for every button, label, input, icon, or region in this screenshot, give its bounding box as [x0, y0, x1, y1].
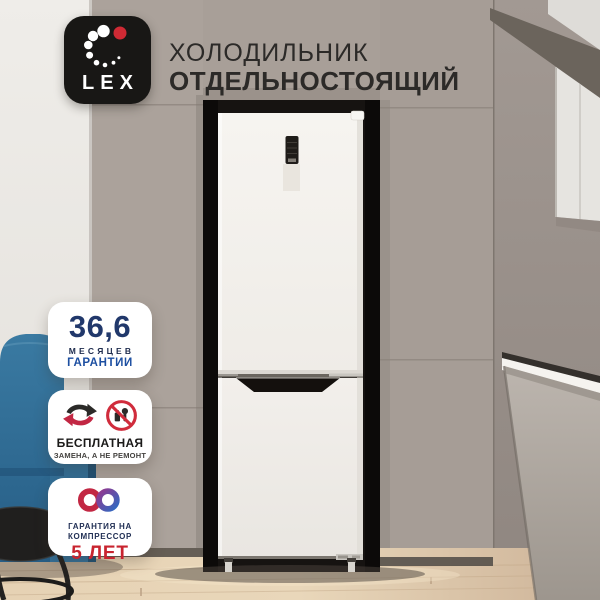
replacement-title: БЕСПЛАТНАЯ [48, 436, 152, 450]
warranty-months-label: МЕСЯЦЕВ [48, 346, 152, 356]
door-handle-recess [236, 378, 340, 392]
no-repair-icon [105, 399, 138, 432]
door-hinge-cap [351, 111, 364, 120]
lex-dotted-c-icon [78, 22, 138, 72]
product-banner: LEX ХОЛОДИЛЬНИК ОТДЕЛЬНОСТОЯЩИЙ 36,6 МЕС… [0, 0, 600, 600]
warranty-guarantee-label: ГАРАНТИИ [48, 357, 152, 369]
title-line-1: ХОЛОДИЛЬНИК [169, 40, 460, 67]
warranty-months-value: 36,6 [48, 311, 152, 342]
replace-cycle-icon [62, 399, 98, 431]
replacement-badge: БЕСПЛАТНАЯ ЗАМЕНА, А НЕ РЕМОНТ [48, 390, 152, 464]
compressor-caption-2: КОМПРЕССОР [48, 532, 152, 542]
compressor-caption-1: ГАРАНТИЯ НА [48, 522, 152, 532]
warranty-badge: 36,6 МЕСЯЦЕВ ГАРАНТИИ [48, 302, 152, 378]
compressor-years-value: 5 ЛЕТ [48, 543, 152, 565]
infinity-icon [74, 486, 126, 514]
refrigerator [218, 111, 364, 572]
page-title: ХОЛОДИЛЬНИК ОТДЕЛЬНОСТОЯЩИЙ [169, 40, 460, 95]
brand-red-dot [114, 27, 127, 40]
compressor-badge: ГАРАНТИЯ НА КОМПРЕССОР 5 ЛЕТ [48, 478, 152, 556]
brand-logo: LEX [64, 16, 151, 104]
title-line-2: ОТДЕЛЬНОСТОЯЩИЙ [169, 67, 460, 95]
replacement-subtitle: ЗАМЕНА, А НЕ РЕМОНТ [48, 451, 152, 460]
brand-name: LEX [64, 72, 151, 95]
